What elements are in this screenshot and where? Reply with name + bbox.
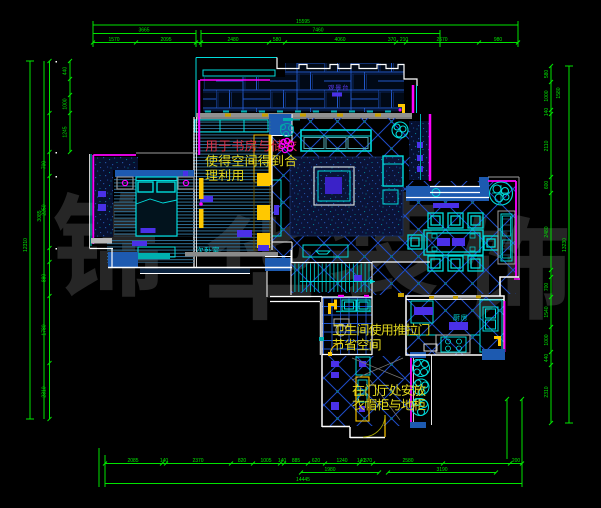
svg-text:370: 370	[388, 37, 397, 43]
svg-text:2110: 2110	[544, 140, 550, 151]
svg-text:620: 620	[312, 458, 321, 464]
svg-text:1005: 1005	[260, 458, 271, 464]
svg-text:700: 700	[544, 283, 550, 292]
svg-text:14445: 14445	[296, 477, 310, 483]
svg-text:440: 440	[544, 354, 550, 363]
svg-text:1780: 1780	[42, 324, 48, 335]
svg-text:1000: 1000	[63, 98, 69, 109]
svg-text:880: 880	[42, 274, 48, 283]
svg-text:1000: 1000	[544, 90, 550, 101]
svg-text:2670: 2670	[436, 37, 447, 43]
svg-text:1000: 1000	[544, 334, 550, 345]
svg-text:1245: 1245	[63, 126, 69, 137]
svg-text:140: 140	[278, 458, 287, 464]
svg-text:580: 580	[273, 37, 282, 43]
svg-text:2310: 2310	[42, 386, 48, 397]
svg-text:2480: 2480	[544, 226, 550, 237]
svg-text:2310: 2310	[544, 386, 550, 397]
svg-text:1570: 1570	[108, 37, 119, 43]
svg-text:4060: 4060	[334, 37, 345, 43]
svg-text:820: 820	[238, 458, 247, 464]
svg-text:580: 580	[544, 70, 550, 79]
svg-text:200: 200	[512, 458, 521, 464]
svg-text:2370: 2370	[192, 458, 203, 464]
svg-text:2095: 2095	[160, 37, 171, 43]
svg-text:3190: 3190	[436, 467, 447, 473]
svg-text:1580: 1580	[556, 87, 562, 98]
svg-text:7460: 7460	[312, 28, 323, 34]
svg-text:2480: 2480	[227, 37, 238, 43]
svg-text:370: 370	[364, 458, 373, 464]
svg-text:140: 140	[544, 108, 550, 117]
svg-text:2250: 2250	[42, 204, 48, 215]
svg-text:440: 440	[63, 67, 69, 76]
svg-text:2580: 2580	[402, 458, 413, 464]
svg-text:700: 700	[42, 161, 48, 170]
svg-text:1980: 1980	[324, 467, 335, 473]
svg-text:13230: 13230	[562, 238, 568, 252]
svg-text:210: 210	[400, 37, 409, 43]
svg-text:1540: 1540	[544, 306, 550, 317]
svg-text:600: 600	[544, 181, 550, 190]
svg-text:885: 885	[292, 458, 301, 464]
svg-text:15595: 15595	[296, 19, 310, 25]
svg-text:3665: 3665	[138, 28, 149, 34]
svg-text:2085: 2085	[127, 458, 138, 464]
svg-text:980: 980	[494, 37, 503, 43]
svg-text:140: 140	[160, 458, 169, 464]
svg-text:12310: 12310	[23, 238, 29, 252]
svg-text:1240: 1240	[336, 458, 347, 464]
